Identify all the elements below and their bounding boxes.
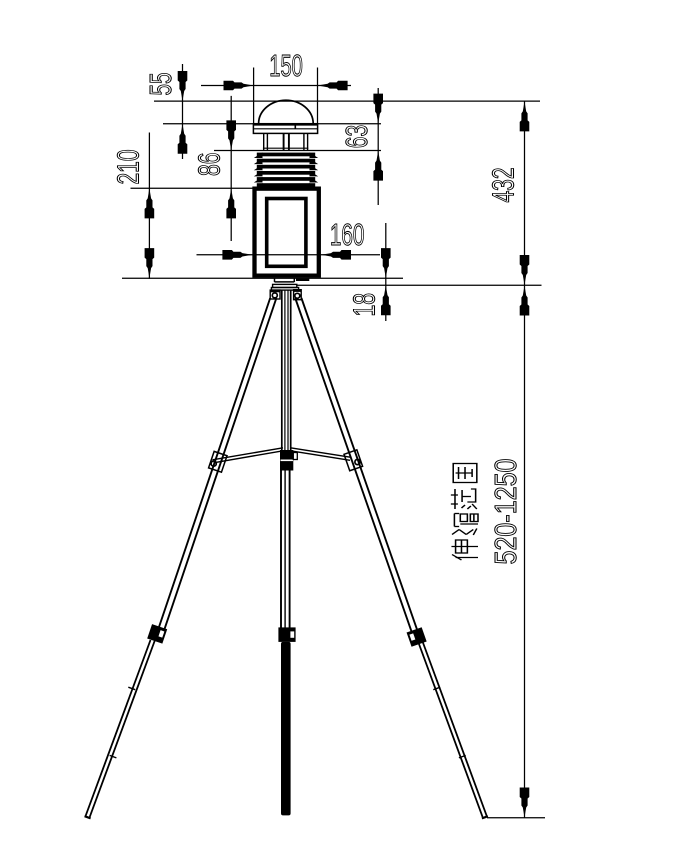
svg-text:55: 55 <box>144 73 178 96</box>
svg-text:210: 210 <box>112 150 146 185</box>
svg-text:63: 63 <box>340 125 374 149</box>
svg-text:160: 160 <box>330 218 365 252</box>
svg-text:520-1250: 520-1250 <box>489 459 523 565</box>
svg-text:18: 18 <box>348 293 382 317</box>
svg-text:150: 150 <box>269 49 303 83</box>
svg-text:86: 86 <box>193 153 227 177</box>
svg-text:432: 432 <box>487 168 521 203</box>
